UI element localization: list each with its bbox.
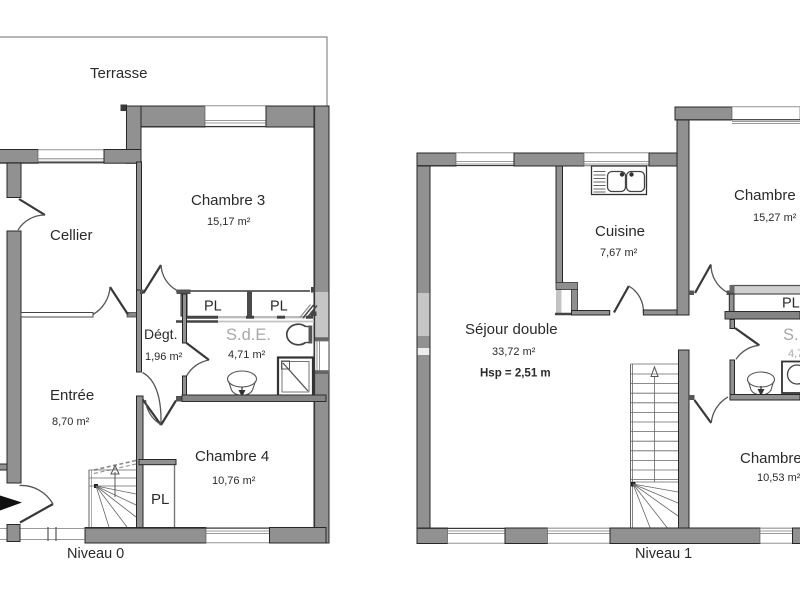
svg-text:1,96 m²: 1,96 m² — [145, 351, 183, 363]
svg-text:PL: PL — [782, 296, 800, 312]
svg-text:Niveau 0: Niveau 0 — [67, 546, 124, 562]
svg-text:Cellier: Cellier — [50, 227, 93, 244]
svg-text:15,27 m²: 15,27 m² — [753, 212, 797, 224]
svg-text:33,72 m²: 33,72 m² — [492, 346, 536, 358]
svg-text:PL: PL — [204, 299, 222, 315]
svg-text:10,76 m²: 10,76 m² — [212, 475, 256, 487]
svg-text:4,71: 4,71 — [788, 348, 800, 360]
svg-text:Chambre: Chambre — [734, 187, 796, 204]
svg-text:Chambre 3: Chambre 3 — [191, 192, 265, 209]
svg-text:Chambre: Chambre — [740, 450, 800, 467]
svg-text:7,67 m²: 7,67 m² — [600, 247, 638, 259]
svg-text:15,17 m²: 15,17 m² — [207, 216, 251, 228]
svg-text:S.: S. — [783, 326, 799, 344]
svg-text:PL: PL — [151, 491, 169, 508]
svg-text:8,70 m²: 8,70 m² — [52, 416, 90, 428]
svg-text:Dégt.: Dégt. — [144, 326, 177, 342]
svg-text:Entrée: Entrée — [50, 387, 94, 404]
svg-text:Chambre 4: Chambre 4 — [195, 448, 269, 465]
svg-text:Séjour double: Séjour double — [465, 321, 558, 338]
svg-text:PL: PL — [270, 299, 288, 315]
svg-text:Cuisine: Cuisine — [595, 223, 645, 240]
svg-text:Hsp = 2,51 m: Hsp = 2,51 m — [480, 368, 551, 380]
svg-text:Terrasse: Terrasse — [90, 65, 148, 82]
svg-text:10,53 m²: 10,53 m² — [757, 472, 800, 484]
svg-text:4,71 m²: 4,71 m² — [228, 349, 266, 361]
svg-text:S.d.E.: S.d.E. — [226, 326, 271, 344]
svg-text:Niveau 1: Niveau 1 — [635, 546, 692, 562]
